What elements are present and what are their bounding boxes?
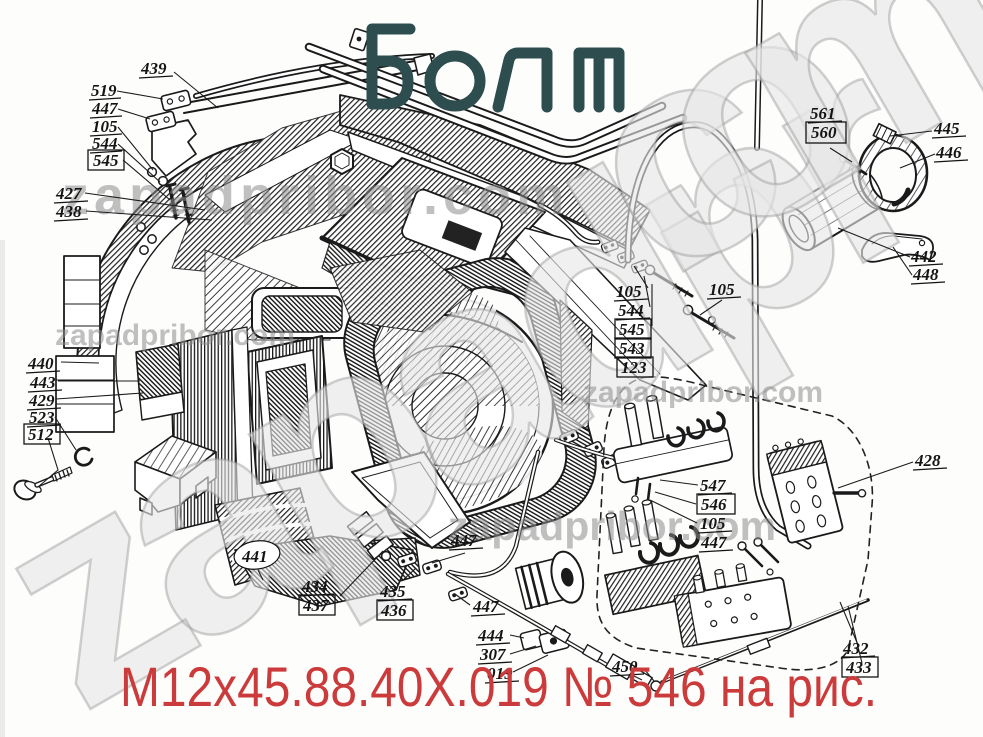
svg-text:М12х45.88.40Х.019 № 546 на рис: М12х45.88.40Х.019 № 546 на рис.	[120, 655, 877, 718]
svg-text:447: 447	[91, 99, 119, 118]
svg-text:545: 545	[93, 151, 119, 170]
svg-text:544: 544	[618, 301, 644, 320]
svg-text:561: 561	[810, 104, 836, 123]
svg-text:zapadpribor.com: zapadpribor.com	[583, 376, 823, 409]
svg-text:444: 444	[477, 626, 504, 645]
svg-text:439: 439	[140, 59, 167, 78]
svg-text:547: 547	[700, 476, 727, 495]
svg-text:438: 438	[55, 202, 82, 221]
svg-text:441: 441	[241, 547, 268, 566]
svg-text:428: 428	[914, 451, 941, 470]
svg-text:512: 512	[28, 425, 54, 444]
svg-text:560: 560	[811, 123, 837, 142]
svg-text:519: 519	[91, 81, 117, 100]
svg-text:443: 443	[29, 373, 56, 392]
svg-text:442: 442	[910, 247, 937, 266]
svg-text:zapadpribor.com: zapadpribor.com	[448, 503, 776, 549]
svg-text:545: 545	[619, 320, 645, 339]
svg-text:zapadpribor.com: zapadpribor.com	[55, 319, 295, 352]
svg-text:zapadpribor.com: zapadpribor.com	[62, 166, 569, 226]
svg-text:445: 445	[933, 119, 960, 138]
svg-text:105: 105	[700, 514, 726, 533]
svg-text:435: 435	[379, 582, 406, 601]
svg-text:437: 437	[302, 596, 330, 615]
svg-text:446: 446	[935, 143, 962, 162]
svg-text:447: 447	[450, 531, 478, 550]
svg-text:447: 447	[700, 533, 728, 552]
svg-text:434: 434	[301, 577, 328, 596]
svg-text:447: 447	[472, 597, 500, 616]
svg-text:427: 427	[55, 184, 83, 203]
svg-text:105: 105	[616, 282, 642, 301]
svg-text:105: 105	[709, 280, 735, 299]
svg-text:546: 546	[701, 495, 727, 514]
svg-text:543: 543	[619, 339, 645, 358]
svg-text:123: 123	[621, 358, 647, 377]
svg-text:440: 440	[27, 354, 54, 373]
svg-text:436: 436	[380, 601, 407, 620]
svg-text:448: 448	[912, 265, 939, 284]
